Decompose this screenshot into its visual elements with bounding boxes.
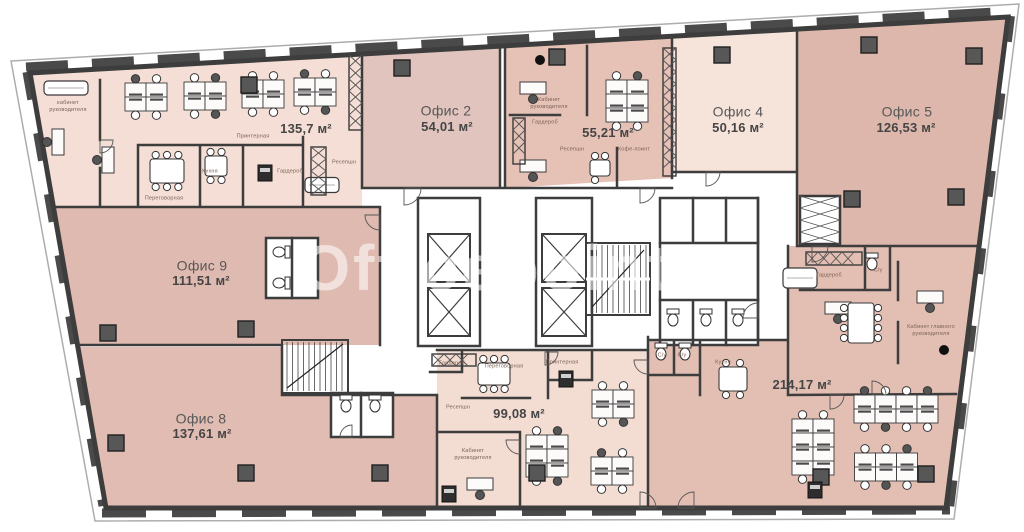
floorplan-svg: Officepoints <box>0 0 1024 532</box>
watermark: Officepoints <box>300 232 709 304</box>
floorplan: Officepoints 135,7 м² Офис 2 54,01 м² 55… <box>0 0 1024 532</box>
